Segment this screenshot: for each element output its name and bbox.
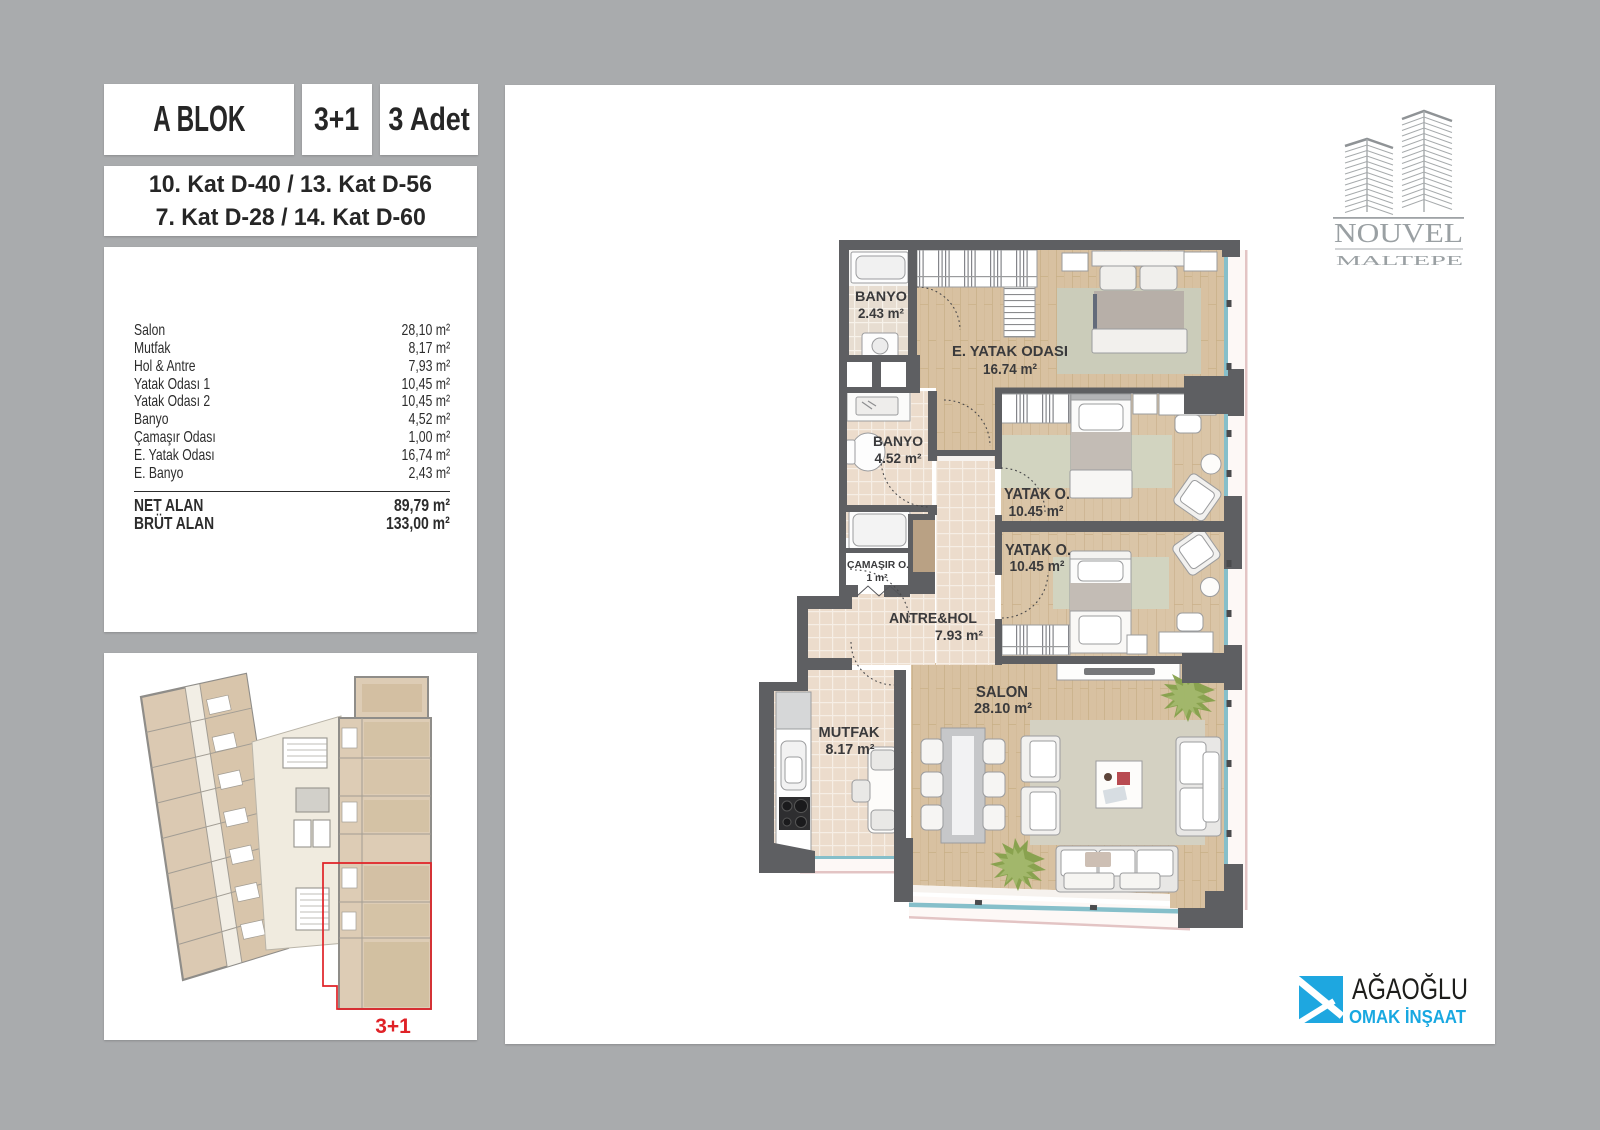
svg-text:ANTRE&HOL: ANTRE&HOL [889,611,977,627]
svg-text:E. YATAK ODASI: E. YATAK ODASI [952,343,1068,360]
svg-text:BANYO: BANYO [873,433,923,449]
svg-text:16.74 m²: 16.74 m² [983,361,1037,378]
svg-text:10.45 m²: 10.45 m² [1009,503,1064,520]
svg-text:28.10 m²: 28.10 m² [974,700,1032,717]
svg-text:MALTEPE: MALTEPE [1336,253,1463,268]
svg-text:1 m²: 1 m² [867,572,888,584]
svg-text:YATAK O.: YATAK O. [1004,486,1070,503]
svg-text:AĞAOĞLU: AĞAOĞLU [1352,973,1468,1006]
svg-text:SALON: SALON [976,684,1028,701]
svg-text:4.52 m²: 4.52 m² [875,451,923,466]
svg-text:YATAK O.: YATAK O. [1005,542,1071,559]
svg-text:MUTFAK: MUTFAK [819,724,880,741]
svg-text:OMAK İNŞAAT: OMAK İNŞAAT [1349,1007,1466,1027]
svg-text:3+1: 3+1 [375,1015,411,1038]
svg-text:NOUVEL: NOUVEL [1334,218,1463,248]
svg-text:ÇAMAŞIR O.: ÇAMAŞIR O. [847,559,909,571]
svg-text:10.45 m²: 10.45 m² [1010,558,1065,575]
svg-text:2.43 m²: 2.43 m² [858,306,904,321]
svg-text:BANYO: BANYO [855,288,907,304]
svg-text:8.17 m²: 8.17 m² [826,742,875,758]
svg-text:7.93 m²: 7.93 m² [935,627,983,643]
